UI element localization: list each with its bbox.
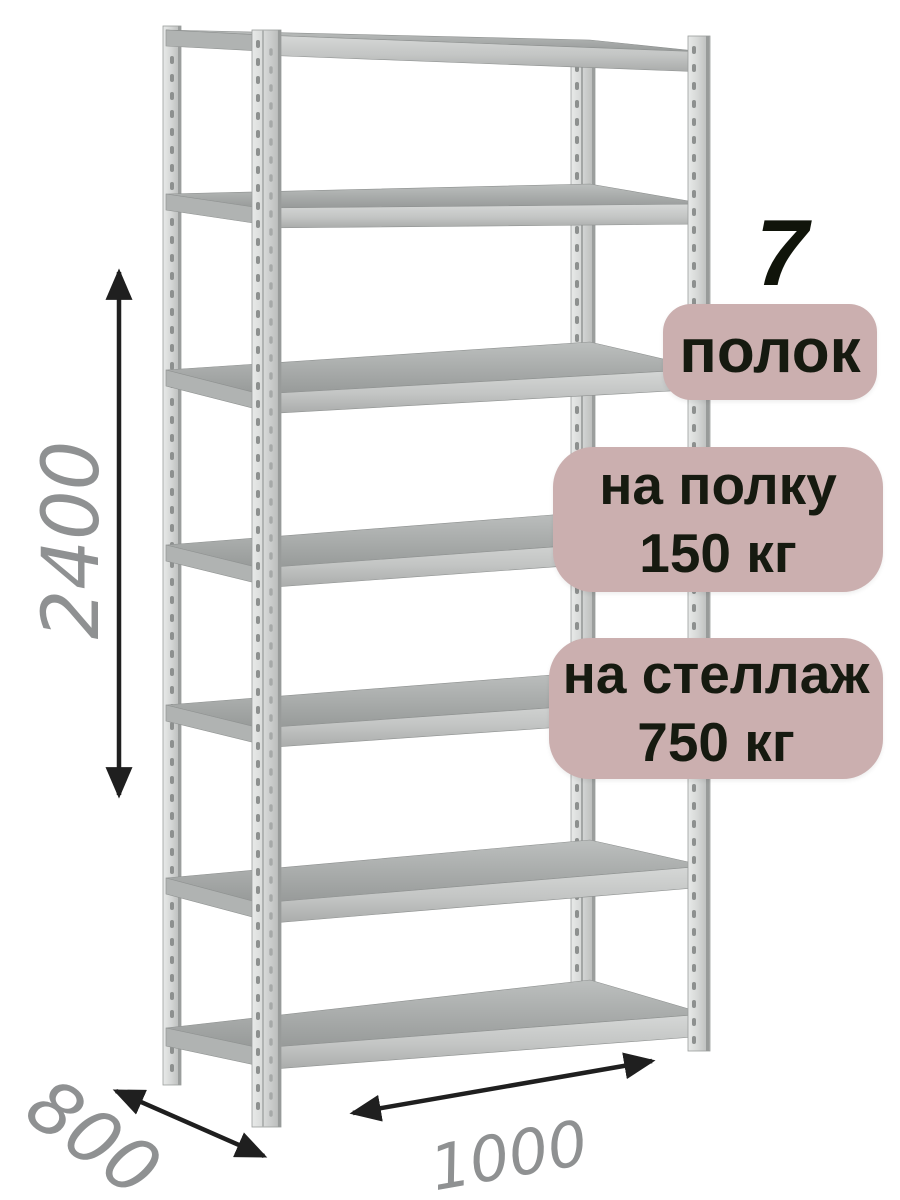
shelf-6 xyxy=(166,840,706,924)
rack-load-line1: на стеллаж xyxy=(563,641,870,708)
rack-illustration xyxy=(0,0,900,1200)
shelf-1 xyxy=(166,30,706,72)
shelf-3 xyxy=(166,342,706,414)
shelf-load-line2: 150 кг xyxy=(639,520,796,587)
shelf-load-badge: на полку 150 кг xyxy=(553,447,883,592)
post-front-left xyxy=(252,30,281,1127)
rack-load-badge: на стеллаж 750 кг xyxy=(549,638,883,779)
shelf-load-line1: на полку xyxy=(599,452,837,519)
shelf-count-number: 7 xyxy=(756,206,808,300)
rack-load-line2: 750 кг xyxy=(637,709,794,776)
product-image: 2400 800 1000 7 полок на полку 150 кг на… xyxy=(0,0,900,1200)
shelf-count-label: полок xyxy=(679,314,860,390)
shelf-7 xyxy=(166,980,706,1070)
shelf-count-badge: полок xyxy=(663,304,877,400)
height-dimension-label: 2400 xyxy=(33,441,111,640)
width-arrow xyxy=(353,1061,652,1113)
shelf-2 xyxy=(166,184,706,228)
